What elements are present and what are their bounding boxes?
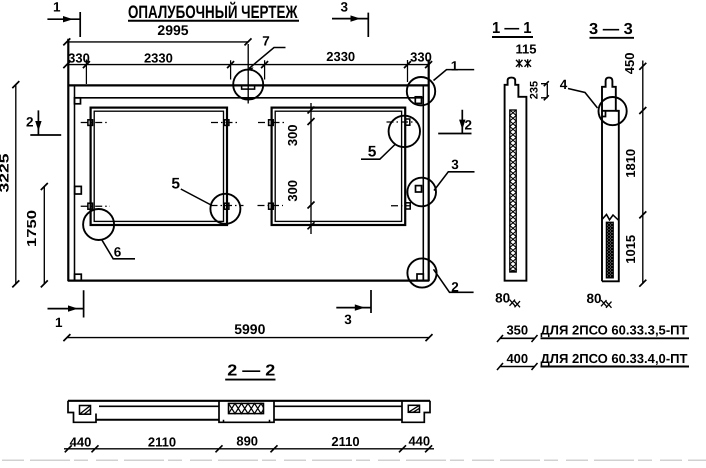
svg-text:330: 330 (410, 50, 432, 65)
svg-text:440: 440 (408, 433, 430, 448)
svg-text:ДЛЯ 2ПСО 60.33.4,0-ПТ: ДЛЯ 2ПСО 60.33.4,0-ПТ (541, 351, 688, 366)
svg-text:4: 4 (560, 77, 568, 92)
svg-text:1: 1 (55, 315, 63, 330)
svg-text:2: 2 (26, 114, 34, 129)
svg-text:1 — 1: 1 — 1 (492, 20, 532, 37)
svg-text:440: 440 (70, 434, 92, 449)
svg-text:350: 350 (506, 322, 528, 337)
svg-text:1: 1 (53, 0, 61, 15)
svg-text:3 — 3: 3 — 3 (589, 21, 633, 38)
svg-text:1810: 1810 (623, 149, 638, 178)
svg-text:5: 5 (368, 144, 377, 161)
svg-text:115: 115 (516, 42, 537, 57)
svg-text:400: 400 (506, 351, 528, 366)
svg-text:3: 3 (340, 0, 348, 15)
svg-text:3225: 3225 (0, 154, 12, 193)
svg-text:ОПАЛУБОЧНЫЙ ЧЕРТЕЖ: ОПАЛУБОЧНЫЙ ЧЕРТЕЖ (128, 1, 298, 22)
svg-text:235: 235 (529, 81, 541, 99)
svg-text:3: 3 (344, 312, 352, 327)
svg-text:2: 2 (465, 117, 473, 132)
svg-text:2330: 2330 (144, 51, 173, 66)
svg-text:300: 300 (285, 124, 300, 146)
svg-text:2110: 2110 (331, 434, 359, 449)
svg-text:2330: 2330 (326, 49, 355, 64)
svg-text:450: 450 (622, 53, 637, 75)
svg-text:2110: 2110 (148, 434, 176, 449)
svg-text:80: 80 (586, 291, 601, 306)
svg-text:5990: 5990 (234, 321, 265, 337)
svg-text:890: 890 (236, 434, 258, 449)
svg-text:1750: 1750 (24, 210, 39, 247)
svg-text:2995: 2995 (157, 22, 188, 38)
svg-text:80: 80 (495, 291, 510, 306)
svg-text:6: 6 (114, 245, 122, 260)
svg-text:7: 7 (262, 34, 270, 49)
svg-text:1015: 1015 (623, 235, 638, 264)
svg-text:2 — 2: 2 — 2 (227, 363, 275, 380)
svg-text:1: 1 (451, 59, 459, 74)
svg-text:5: 5 (171, 176, 180, 193)
svg-text:ДЛЯ 2ПСО 60.33.3,5-ПТ: ДЛЯ 2ПСО 60.33.3,5-ПТ (541, 322, 688, 337)
svg-text:300: 300 (285, 180, 300, 202)
svg-text:3: 3 (451, 157, 459, 172)
